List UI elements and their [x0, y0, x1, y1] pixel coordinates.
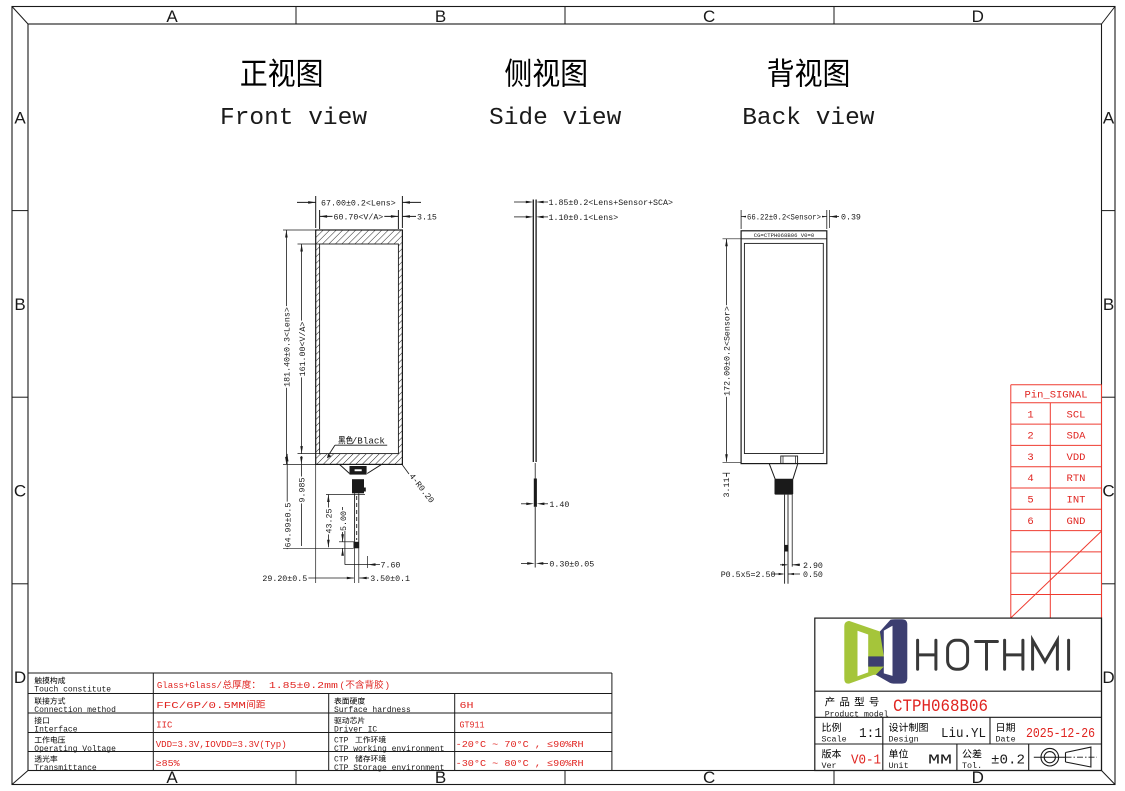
svg-text:B: B: [435, 7, 446, 26]
svg-text:CTPH068B06: CTPH068B06: [893, 697, 988, 717]
svg-text:Surface hardness: Surface hardness: [334, 706, 411, 715]
svg-text:2025-12-26: 2025-12-26: [1026, 727, 1095, 742]
svg-text:64.99±0.5: 64.99±0.5: [284, 503, 293, 548]
svg-text:±0.2: ±0.2: [991, 754, 1025, 769]
svg-text:Touch constitute: Touch constitute: [34, 686, 111, 695]
svg-text:GT911: GT911: [460, 719, 485, 730]
svg-text:Pin_SIGNAL: Pin_SIGNAL: [1024, 390, 1087, 402]
svg-text:MM: MM: [928, 754, 952, 769]
svg-text:1.85±0.2<Lens+Sensor+SCA>: 1.85±0.2<Lens+Sensor+SCA>: [549, 199, 673, 208]
svg-text:60.70<V/A>: 60.70<V/A>: [334, 212, 384, 222]
svg-text:B: B: [14, 295, 25, 314]
svg-text:B: B: [1103, 295, 1114, 314]
svg-text:9.985: 9.985: [299, 478, 308, 503]
svg-text:A: A: [166, 768, 178, 787]
svg-text:Scale: Scale: [822, 735, 847, 745]
svg-text:1:1: 1:1: [859, 727, 882, 742]
svg-text:6H: 6H: [460, 700, 474, 711]
svg-text:Design: Design: [889, 735, 919, 745]
svg-text:(: (: [340, 680, 346, 691]
svg-text:C: C: [703, 768, 715, 787]
svg-text:Back view: Back view: [742, 105, 875, 132]
svg-text:Interface: Interface: [34, 726, 77, 735]
svg-text:Ver: Ver: [822, 761, 837, 771]
svg-text:CTP working environment: CTP working environment: [334, 745, 444, 754]
svg-text:VDD: VDD: [1067, 452, 1086, 464]
svg-text:Transmittance: Transmittance: [34, 764, 97, 773]
svg-text:3.50±0.1: 3.50±0.1: [370, 575, 410, 584]
svg-text:3.11: 3.11: [723, 478, 732, 498]
svg-text:VDD=3.3V,IOVDD=3.3V(Typ): VDD=3.3V,IOVDD=3.3V(Typ): [156, 739, 287, 750]
svg-text:Front view: Front view: [220, 105, 367, 132]
svg-text:Date: Date: [996, 735, 1016, 745]
svg-text:D: D: [1102, 668, 1114, 687]
svg-text:SDA: SDA: [1067, 431, 1087, 443]
svg-text:-30°C ~ 80°C , ≤90%RH: -30°C ~ 80°C , ≤90%RH: [456, 758, 584, 769]
svg-text:GND: GND: [1067, 516, 1086, 528]
svg-text:0.30±0.05: 0.30±0.05: [549, 560, 594, 569]
svg-text:4: 4: [1027, 473, 1033, 485]
svg-text:2: 2: [1027, 431, 1033, 443]
svg-text:161.00<V/A>: 161.00<V/A>: [298, 322, 308, 377]
svg-text:0.39: 0.39: [841, 214, 861, 223]
svg-text:Glass+Glass/: Glass+Glass/: [157, 680, 222, 691]
svg-text:Side view: Side view: [489, 105, 622, 132]
svg-text:D: D: [972, 7, 984, 26]
svg-text:A: A: [14, 109, 26, 128]
svg-text:1.85±0.2mm: 1.85±0.2mm: [269, 680, 339, 691]
svg-text:1.10±0.1<Lens>: 1.10±0.1<Lens>: [549, 214, 619, 223]
svg-text:7.60: 7.60: [381, 562, 401, 571]
svg-text:2.90: 2.90: [803, 562, 823, 571]
svg-text:43.25: 43.25: [326, 509, 335, 534]
svg-text:D: D: [14, 668, 26, 687]
svg-text:C: C: [703, 7, 715, 26]
svg-text:C: C: [1102, 482, 1114, 501]
svg-text:A: A: [166, 7, 178, 26]
svg-text:Liu.YL: Liu.YL: [941, 727, 986, 742]
svg-text:Product model: Product model: [825, 710, 889, 720]
svg-text:3: 3: [1027, 452, 1033, 464]
svg-text:INT: INT: [1067, 495, 1086, 507]
svg-text:0.50: 0.50: [803, 571, 823, 580]
svg-text:3.15: 3.15: [417, 213, 437, 222]
svg-text:SCL: SCL: [1067, 409, 1086, 421]
svg-text:1: 1: [1027, 409, 1033, 421]
svg-text:29.20±0.5: 29.20±0.5: [262, 575, 307, 584]
svg-text:): ): [385, 680, 391, 691]
svg-text:RTN: RTN: [1067, 473, 1086, 485]
svg-text:Connection method: Connection method: [34, 706, 116, 715]
svg-text:≥85%: ≥85%: [156, 758, 181, 769]
svg-text:A: A: [1103, 109, 1115, 128]
svg-text:IIC: IIC: [156, 719, 172, 730]
svg-text:1.40: 1.40: [549, 501, 569, 510]
svg-text:181.40±0.3<Lens>: 181.40±0.3<Lens>: [284, 307, 293, 387]
svg-text:Driver IC: Driver IC: [334, 726, 377, 735]
svg-text:V0-1: V0-1: [851, 754, 881, 769]
svg-text:66.22±0.2<Sensor>: 66.22±0.2<Sensor>: [747, 214, 821, 223]
svg-text:FFC/6P/0.5MM: FFC/6P/0.5MM: [156, 700, 246, 711]
svg-text:67.00±0.2<Lens>: 67.00±0.2<Lens>: [321, 199, 396, 208]
svg-text:CTP Storage environment: CTP Storage environment: [334, 764, 444, 773]
svg-text:6: 6: [1027, 516, 1033, 528]
svg-text:Operating Voltage: Operating Voltage: [34, 745, 116, 754]
svg-text:Unit: Unit: [889, 761, 909, 771]
svg-text:CG=CTPH068B06 V0=0: CG=CTPH068B06 V0=0: [754, 232, 815, 239]
svg-text:Tol.: Tol.: [962, 761, 982, 771]
svg-text:-20°C ~ 70°C , ≤90%RH: -20°C ~ 70°C , ≤90%RH: [456, 739, 584, 750]
svg-text:P0.5x5=2.50: P0.5x5=2.50: [721, 571, 776, 580]
svg-text:172.00±0.2<Sensor>: 172.00±0.2<Sensor>: [724, 306, 733, 396]
svg-text:5: 5: [1027, 495, 1033, 507]
svg-text:5.00: 5.00: [340, 511, 349, 531]
svg-text:C: C: [14, 482, 26, 501]
